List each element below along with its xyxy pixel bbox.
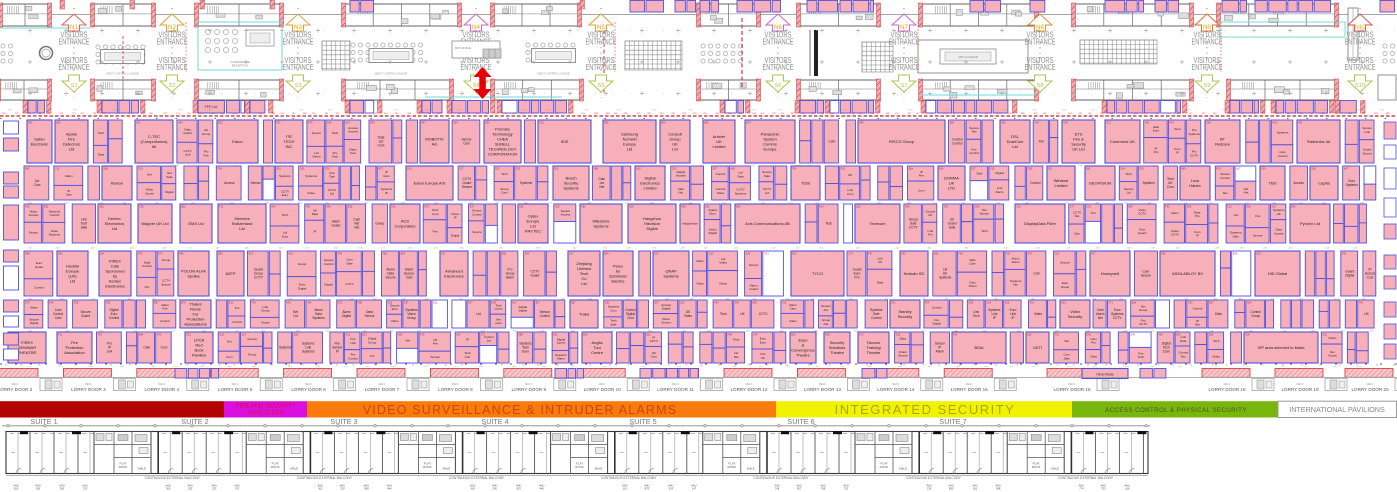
svg-text:MALE: MALE: [1051, 467, 1059, 471]
svg-text:IP: IP: [313, 230, 316, 234]
svg-text:833: 833: [516, 487, 521, 491]
svg-text:1750: 1750: [232, 110, 238, 112]
svg-text:SUITE 2: SUITE 2: [181, 417, 208, 426]
svg-text:E19: E19: [1261, 167, 1266, 170]
svg-text:Cam: Cam: [1163, 350, 1170, 354]
svg-text:LTD: LTD: [948, 185, 955, 190]
svg-text:Electronics: Electronics: [444, 273, 464, 278]
svg-text:D67: D67: [1209, 301, 1214, 304]
svg-text:71: 71: [480, 365, 482, 367]
svg-text:H41: H41: [58, 252, 63, 255]
svg-text:96: 96: [748, 365, 750, 367]
svg-text:Link: Link: [465, 355, 471, 359]
svg-text:C31: C31: [55, 167, 60, 170]
svg-text:80: 80: [20, 365, 22, 367]
svg-text:Net: Net: [1195, 323, 1200, 327]
svg-text:A21: A21: [136, 121, 141, 124]
svg-text:Euro: Euro: [760, 340, 767, 344]
svg-text:Pro: Pro: [1091, 341, 1096, 345]
svg-text:Digital: Digital: [342, 314, 351, 318]
svg-text:94: 94: [903, 365, 905, 367]
svg-text:E39: E39: [1176, 333, 1181, 336]
svg-text:Net: Net: [1181, 354, 1186, 358]
svg-text:Access: Access: [224, 181, 235, 185]
svg-text:A49: A49: [728, 333, 733, 336]
svg-text:C71: C71: [481, 333, 486, 336]
svg-text:LORRY DOOR 20: LORRY DOOR 20: [1351, 387, 1389, 392]
svg-text:1750: 1750: [1147, 110, 1153, 112]
svg-text:MECC: MECC: [892, 383, 899, 386]
svg-text:1750: 1750: [812, 110, 818, 112]
svg-text:85: 85: [571, 365, 573, 367]
svg-text:Hand Made: Hand Made: [1096, 373, 1114, 377]
svg-text:MALE: MALE: [747, 467, 755, 471]
svg-text:E51: E51: [363, 333, 368, 336]
svg-text:A10: A10: [388, 301, 393, 304]
svg-text:19: 19: [1037, 365, 1039, 367]
svg-text:147: 147: [692, 487, 697, 491]
svg-text:Data: Data: [877, 281, 884, 285]
svg-text:F12: F12: [219, 205, 224, 208]
svg-text:Sensor: Sensor: [661, 321, 671, 325]
svg-text:Data: Data: [312, 212, 319, 216]
svg-text:47: 47: [202, 365, 204, 367]
svg-text:292: 292: [188, 487, 193, 491]
svg-text:320: 320: [340, 487, 345, 491]
svg-text:Texecom: Texecom: [869, 221, 886, 226]
svg-text:E46: E46: [525, 252, 530, 255]
svg-text:Vision: Vision: [1328, 336, 1336, 340]
svg-text:SAFE CITIES: SAFE CITIES: [247, 411, 284, 417]
svg-text:Data: Data: [98, 152, 105, 156]
svg-text:58: 58: [1105, 365, 1107, 367]
svg-text:Ltd: Ltd: [476, 312, 481, 316]
svg-text:Ltd: Ltd: [1012, 144, 1018, 149]
svg-text:S9: S9: [1203, 83, 1210, 89]
svg-text:E22: E22: [218, 121, 223, 124]
svg-text:75: 75: [151, 365, 153, 367]
svg-text:748: 748: [775, 487, 780, 491]
svg-text:Spolka: Spolka: [187, 273, 200, 278]
svg-text:Secure: Secure: [1141, 274, 1151, 278]
svg-text:LORRY DOOR 8: LORRY DOOR 8: [438, 387, 473, 392]
svg-text:MECC: MECC: [599, 383, 606, 386]
svg-text:ROOF: ROOF: [119, 465, 128, 469]
svg-text:1750: 1750: [8, 110, 14, 112]
svg-text:702: 702: [844, 487, 849, 491]
svg-text:Control: Control: [969, 151, 979, 155]
svg-text:CCTV: CCTV: [1138, 212, 1146, 216]
svg-text:B54: B54: [909, 167, 914, 170]
svg-text:65: 65: [866, 365, 868, 367]
svg-text:G90: G90: [1188, 301, 1193, 304]
svg-text:Net: Net: [1013, 283, 1018, 287]
svg-text:H17: H17: [1091, 252, 1096, 255]
svg-text:B72: B72: [378, 167, 383, 170]
svg-text:G21: G21: [1106, 121, 1111, 124]
svg-text:E73: E73: [158, 252, 163, 255]
svg-text:Cam: Cam: [406, 276, 413, 280]
svg-text:A2FP: A2FP: [225, 271, 235, 276]
svg-text:Cam: Cam: [463, 142, 470, 146]
svg-text:Secure: Secure: [1362, 151, 1372, 155]
svg-text:Cam: Cam: [66, 193, 73, 197]
svg-text:Electric: Electric: [611, 278, 624, 283]
svg-text:FIRE AND SECURITY: FIRE AND SECURITY: [236, 404, 296, 410]
svg-text:SUITE 5: SUITE 5: [629, 417, 656, 426]
svg-text:Ltd: Ltd: [70, 278, 76, 283]
svg-text:MECC: MECC: [819, 383, 826, 386]
svg-text:S7: S7: [900, 83, 907, 89]
svg-text:Com: Com: [161, 346, 168, 350]
svg-text:Net: Net: [1244, 191, 1249, 195]
svg-text:LORRY DOOR 2: LORRY DOOR 2: [0, 387, 33, 392]
svg-text:66: 66: [1137, 365, 1139, 367]
svg-text:55: 55: [628, 365, 630, 367]
svg-text:H57: H57: [404, 301, 409, 304]
svg-text:Access: Access: [676, 174, 686, 178]
svg-text:Video: Video: [789, 319, 797, 323]
svg-text:788: 788: [821, 487, 826, 491]
svg-text:1750: 1750: [752, 110, 758, 112]
svg-text:S6: S6: [774, 83, 781, 89]
svg-text:H50: H50: [286, 301, 291, 304]
svg-text:B26: B26: [1187, 205, 1192, 208]
svg-text:Cam: Cam: [969, 262, 976, 266]
svg-text:Tech: Tech: [282, 213, 289, 217]
svg-text:Access: Access: [1294, 181, 1305, 185]
svg-text:B78: B78: [181, 301, 186, 304]
svg-text:93: 93: [1212, 365, 1214, 367]
svg-text:Tech: Tech: [981, 229, 988, 233]
svg-text:C90: C90: [74, 301, 79, 304]
svg-text:Control: Control: [348, 356, 358, 360]
svg-text:Com: Com: [432, 212, 439, 216]
svg-text:UK: UK: [848, 173, 852, 177]
svg-text:Europe: Europe: [764, 146, 778, 151]
svg-text:446: 446: [539, 487, 544, 491]
svg-text:Secure: Secure: [386, 276, 396, 280]
svg-text:Group: Group: [202, 132, 211, 136]
svg-text:31: 31: [336, 365, 338, 367]
svg-text:Limited: Limited: [644, 185, 657, 190]
svg-text:C74: C74: [848, 252, 853, 255]
svg-text:E93: E93: [44, 205, 49, 208]
svg-text:Digital: Digital: [1345, 274, 1354, 278]
svg-text:83: 83: [766, 365, 768, 367]
svg-text:Vision: Vision: [969, 284, 977, 288]
svg-text:D15: D15: [856, 205, 861, 208]
svg-text:A32: A32: [746, 252, 751, 255]
svg-text:Guard: Guard: [750, 287, 759, 291]
svg-text:Systems: Systems: [302, 350, 315, 354]
svg-text:F96: F96: [338, 252, 343, 255]
svg-text:97: 97: [647, 365, 649, 367]
svg-text:Ltd: Ltd: [1234, 213, 1239, 217]
svg-text:B34: B34: [401, 252, 406, 255]
svg-text:Pro: Pro: [855, 276, 860, 280]
svg-text:F11: F11: [58, 333, 63, 336]
svg-text:B70: B70: [1217, 167, 1222, 170]
svg-text:1750: 1750: [943, 110, 949, 112]
svg-text:1750: 1750: [362, 110, 368, 112]
svg-text:51: 51: [1057, 365, 1059, 367]
svg-text:22: 22: [165, 365, 167, 367]
svg-text:ENTRANCE: ENTRANCE: [763, 63, 794, 72]
svg-text:B97: B97: [571, 301, 576, 304]
svg-text:Data: Data: [1090, 354, 1097, 358]
svg-text:Control: Control: [324, 262, 334, 266]
svg-text:Tech: Tech: [825, 222, 832, 226]
svg-text:G23: G23: [186, 333, 191, 336]
svg-text:1750: 1750: [1090, 110, 1096, 112]
svg-text:Video: Video: [1034, 312, 1042, 316]
svg-text:VIP area selected to Malta: VIP area selected to Malta: [1258, 345, 1306, 350]
svg-text:96: 96: [271, 365, 273, 367]
svg-text:LORRY DOOR 12: LORRY DOOR 12: [730, 387, 768, 392]
svg-text:Safe: Safe: [346, 261, 353, 265]
svg-text:Guard: Guard: [183, 131, 192, 135]
svg-text:C42: C42: [391, 205, 396, 208]
svg-text:1750: 1750: [583, 110, 589, 112]
svg-text:1750: 1750: [545, 110, 551, 112]
svg-text:C77: C77: [1070, 205, 1075, 208]
svg-text:Alarm: Alarm: [996, 190, 1004, 194]
svg-text:E11: E11: [229, 301, 234, 304]
svg-text:D27: D27: [971, 167, 976, 170]
svg-text:Control: Control: [932, 306, 942, 310]
svg-text:Digital: Digital: [646, 226, 657, 231]
svg-text:1750: 1750: [616, 110, 622, 112]
svg-text:Link: Link: [185, 153, 191, 157]
svg-text:D22: D22: [1323, 333, 1328, 336]
svg-text:F18: F18: [25, 205, 30, 208]
svg-text:74: 74: [995, 365, 997, 367]
svg-text:CONTINUOUS EXTERNAL BALCONY: CONTINUOUS EXTERNAL BALCONY: [601, 476, 657, 480]
svg-text:A65: A65: [1158, 333, 1163, 336]
svg-text:Safe: Safe: [1233, 234, 1240, 238]
svg-text:ENTRANCE: ENTRANCE: [59, 38, 90, 47]
svg-text:Video: Video: [391, 319, 399, 323]
svg-text:Group: Group: [1061, 285, 1070, 289]
svg-text:957: 957: [797, 487, 802, 491]
svg-text:H14: H14: [819, 205, 824, 208]
svg-text:29: 29: [129, 365, 131, 367]
svg-text:81: 81: [1243, 365, 1245, 367]
svg-text:Com: Com: [350, 151, 357, 155]
svg-text:D88: D88: [594, 167, 599, 170]
svg-text:C47: C47: [569, 252, 574, 255]
svg-text:Digital: Digital: [30, 321, 39, 325]
svg-text:E19: E19: [1027, 333, 1032, 336]
svg-text:1750: 1750: [457, 110, 463, 112]
svg-text:MECC: MECC: [11, 383, 18, 386]
svg-text:89: 89: [1282, 365, 1284, 367]
svg-text:C19: C19: [539, 121, 544, 124]
svg-text:A94: A94: [271, 205, 276, 208]
svg-text:D76: D76: [1131, 333, 1136, 336]
svg-text:F21: F21: [1048, 167, 1053, 170]
svg-text:A21: A21: [346, 333, 351, 336]
svg-text:66: 66: [352, 365, 354, 367]
svg-text:EMS Ltd: EMS Ltd: [188, 221, 203, 226]
svg-text:H68: H68: [825, 333, 830, 336]
svg-text:1750: 1750: [1186, 110, 1192, 112]
svg-text:Group: Group: [368, 340, 377, 344]
svg-text:Ltd: Ltd: [69, 146, 75, 151]
svg-text:1750: 1750: [687, 110, 693, 112]
svg-text:FFE Ltd: FFE Ltd: [205, 105, 218, 109]
svg-text:MECC: MECC: [745, 383, 752, 386]
svg-text:Cam: Cam: [143, 346, 150, 350]
svg-text:16: 16: [1356, 365, 1358, 367]
svg-text:Sensor: Sensor: [980, 212, 990, 216]
svg-text:A93: A93: [905, 205, 910, 208]
svg-text:Alarm: Alarm: [1171, 211, 1179, 215]
svg-text:Theatre: Theatre: [867, 350, 882, 355]
svg-text:ENTRANCE: ENTRANCE: [157, 38, 188, 47]
svg-text:Tech: Tech: [733, 338, 740, 342]
svg-text:Net: Net: [1098, 316, 1103, 320]
svg-text:Security: Security: [1068, 314, 1082, 319]
svg-text:Net: Net: [599, 185, 604, 189]
svg-text:MALE: MALE: [443, 467, 451, 471]
svg-text:E14: E14: [792, 252, 797, 255]
svg-text:Secure: Secure: [472, 230, 482, 234]
svg-text:1750: 1750: [722, 110, 728, 112]
svg-text:WEST COFFEE LOUNGE: WEST COFFEE LOUNGE: [375, 72, 408, 76]
svg-text:F69: F69: [1165, 205, 1170, 208]
svg-text:Net: Net: [972, 130, 977, 134]
svg-text:G69: G69: [1311, 167, 1316, 170]
svg-text:1750: 1750: [1379, 110, 1385, 112]
svg-text:S2: S2: [168, 83, 175, 89]
svg-text:C51: C51: [1227, 205, 1232, 208]
svg-text:21: 21: [395, 365, 397, 367]
svg-text:ENTRANCE: ENTRANCE: [1025, 63, 1056, 72]
svg-text:Video: Video: [307, 191, 315, 195]
svg-text:10: 10: [74, 365, 76, 367]
svg-text:LORRY DOOR 11: LORRY DOOR 11: [657, 387, 694, 392]
svg-text:G11: G11: [433, 301, 438, 304]
svg-text:E96: E96: [939, 167, 944, 170]
svg-text:RISCO Group: RISCO Group: [889, 139, 915, 144]
svg-text:Control: Control: [34, 285, 44, 289]
svg-text:Safe: Safe: [1064, 356, 1071, 360]
svg-text:D99: D99: [491, 301, 496, 304]
svg-text:Systems: Systems: [49, 233, 61, 237]
svg-text:Systems: Systems: [520, 181, 533, 185]
svg-text:F21: F21: [1055, 333, 1060, 336]
svg-text:D29: D29: [1087, 333, 1092, 336]
svg-text:Pavilion: Pavilion: [192, 352, 206, 357]
svg-text:ENTRANCE: ENTRANCE: [59, 63, 90, 72]
svg-text:Sensor: Sensor: [431, 355, 441, 359]
svg-text:H75: H75: [424, 205, 429, 208]
svg-text:IP: IP: [336, 350, 339, 354]
svg-text:Theatre: Theatre: [830, 350, 845, 355]
svg-text:F23: F23: [944, 205, 949, 208]
svg-text:18: 18: [718, 365, 720, 367]
svg-text:A13: A13: [1272, 205, 1277, 208]
svg-text:Guard: Guard: [35, 265, 44, 269]
svg-text:Control: Control: [1193, 307, 1203, 311]
svg-text:Security: Security: [898, 314, 912, 319]
svg-text:92: 92: [186, 365, 188, 367]
svg-text:D64: D64: [453, 121, 458, 124]
svg-text:Tech: Tech: [1213, 339, 1220, 343]
svg-text:Net: Net: [678, 191, 683, 195]
svg-text:30: 30: [557, 365, 559, 367]
svg-text:F46: F46: [252, 301, 257, 304]
svg-text:LORRY DOOR 9: LORRY DOOR 9: [512, 387, 547, 392]
svg-text:F42: F42: [420, 333, 425, 336]
svg-text:944: 944: [387, 487, 392, 491]
svg-text:LORRY DOOR 10: LORRY DOOR 10: [584, 387, 622, 392]
svg-text:Fire: Fire: [433, 229, 438, 233]
svg-text:Link: Link: [350, 341, 356, 345]
svg-text:Alarm: Alarm: [696, 259, 704, 263]
svg-text:B54: B54: [604, 252, 609, 255]
svg-text:G96: G96: [969, 301, 974, 304]
svg-text:Ltd: Ltd: [627, 146, 633, 151]
svg-text:LORRY DOOR 19: LORRY DOOR 19: [1281, 387, 1319, 392]
svg-text:F67: F67: [1359, 301, 1364, 304]
svg-text:53: 53: [412, 365, 414, 367]
svg-text:H72: H72: [98, 333, 103, 336]
svg-text:73: 73: [1172, 365, 1174, 367]
svg-text:Net: Net: [147, 172, 152, 176]
svg-text:WEST COFFEE LOUNGE: WEST COFFEE LOUNGE: [537, 72, 570, 76]
svg-text:295: 295: [492, 487, 497, 491]
svg-text:Klaxon: Klaxon: [111, 180, 123, 185]
svg-text:ENTRANCE: ENTRANCE: [1345, 63, 1376, 72]
svg-text:ENTRANCE: ENTRANCE: [283, 63, 314, 72]
svg-text:TDSi: TDSi: [801, 180, 810, 185]
svg-text:G22: G22: [672, 167, 677, 170]
svg-text:Group: Group: [298, 262, 307, 266]
svg-text:95: 95: [808, 365, 810, 367]
svg-text:H10: H10: [398, 333, 403, 336]
svg-text:CONTINUOUS EXTERNAL BALCONY: CONTINUOUS EXTERNAL BALCONY: [297, 476, 353, 480]
svg-text:Link: Link: [1364, 130, 1370, 134]
svg-text:TBS: TBS: [1269, 180, 1277, 185]
svg-text:Guard: Guard: [81, 314, 90, 318]
svg-text:Data: Data: [737, 174, 744, 178]
svg-text:Data: Data: [1180, 339, 1187, 343]
svg-text:E19: E19: [249, 252, 254, 255]
svg-text:Pro: Pro: [1154, 150, 1159, 154]
svg-text:Fire: Fire: [1255, 214, 1260, 218]
svg-text:Tech: Tech: [98, 131, 105, 135]
svg-text:Com: Com: [1033, 272, 1040, 276]
svg-text:Guard: Guard: [1328, 354, 1337, 358]
svg-text:A56: A56: [1005, 301, 1010, 304]
svg-text:D41: D41: [1342, 252, 1347, 255]
svg-text:LORRY DOOR 18: LORRY DOOR 18: [1208, 387, 1246, 392]
svg-text:MECC: MECC: [1366, 383, 1373, 386]
svg-text:Systems: Systems: [1277, 131, 1289, 135]
svg-text:IP: IP: [466, 337, 469, 341]
svg-text:Systems: Systems: [939, 276, 952, 280]
svg-text:99: 99: [537, 365, 539, 367]
svg-text:SUITE 6: SUITE 6: [787, 417, 814, 426]
svg-text:GEOVISION: GEOVISION: [1089, 180, 1112, 185]
svg-text:Group: Group: [1139, 308, 1148, 312]
svg-text:Access: Access: [348, 130, 358, 134]
svg-text:Cam: Cam: [495, 321, 502, 325]
svg-text:LORRY DOOR 15: LORRY DOOR 15: [951, 387, 989, 392]
